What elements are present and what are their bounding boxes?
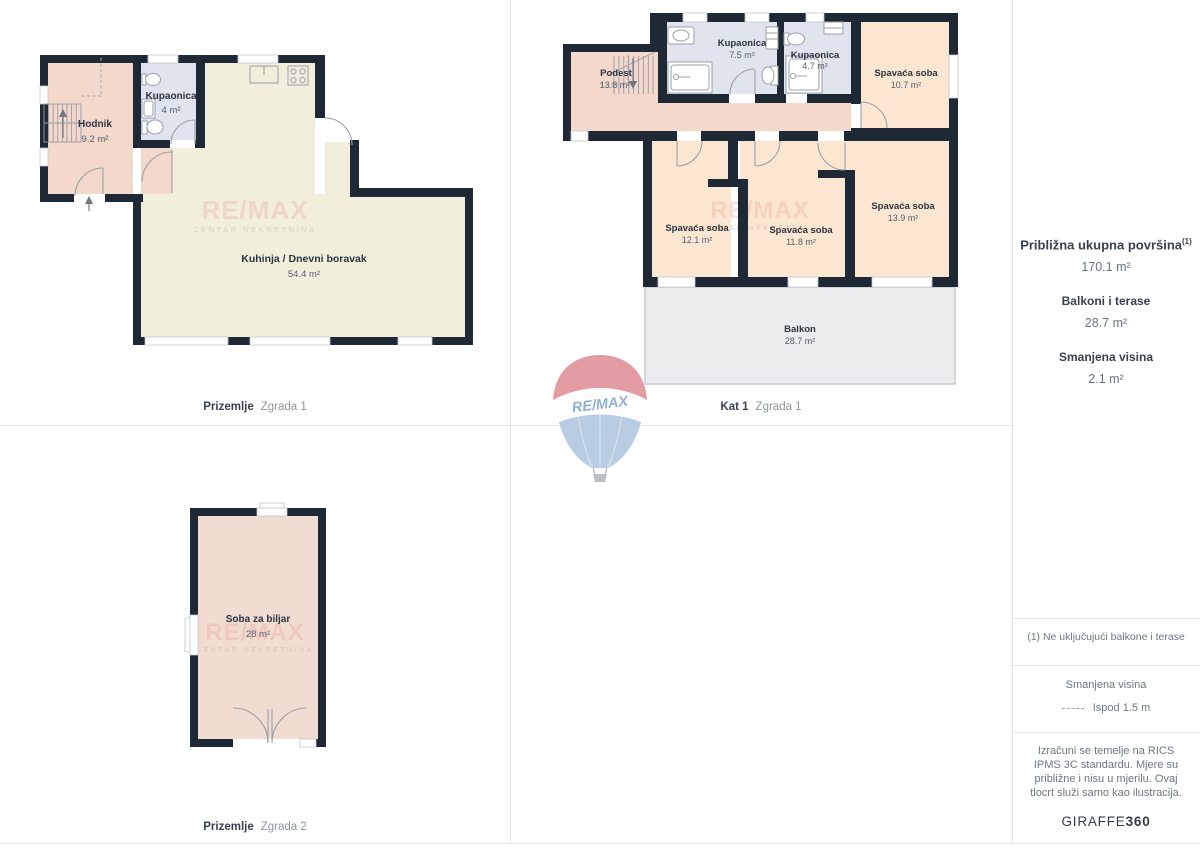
caption-plan3-building: Zgrada 2 (261, 821, 307, 833)
remax-balloon-logo: RE/MAX (540, 350, 660, 485)
legend-text: Ispod 1.5 m (1093, 702, 1150, 714)
total-area-text: Približna ukupna površina (1020, 237, 1182, 252)
total-area-footnote-marker: (1) (1182, 237, 1192, 246)
caption-plan1: Prizemlje Zgrada 1 (0, 401, 510, 413)
svg-text:CENTAR NEKRETNINA: CENTAR NEKRETNINA (196, 647, 314, 654)
total-area-label: Približna ukupna površina(1) (1012, 234, 1200, 252)
svg-text:7.5 m²: 7.5 m² (729, 50, 755, 60)
svg-text:Kuhinja / Dnevni boravak: Kuhinja / Dnevni boravak (241, 253, 367, 265)
svg-text:CENTAR NEKRETNINA: CENTAR NEKRETNINA (193, 225, 316, 234)
legend-title: Smanjena visina (1012, 679, 1200, 691)
svg-text:Kupaonica: Kupaonica (718, 38, 767, 49)
caption-plan2: Kat 1 Zgrada 1 (510, 401, 1012, 413)
brand-bold: 360 (1126, 814, 1151, 829)
svg-text:Kupaonica: Kupaonica (145, 91, 197, 102)
brand-regular: GIRAFFE (1061, 814, 1125, 829)
svg-text:9.2 m²: 9.2 m² (82, 134, 109, 145)
svg-text:Balkon: Balkon (784, 324, 816, 335)
disclaimer-text: Izračuni se temelje na RICS IPMS 3C stan… (1024, 744, 1188, 800)
svg-text:Spavaća soba: Spavaća soba (871, 201, 935, 212)
svg-text:13.9 m²: 13.9 m² (888, 213, 919, 223)
dashed-line-sample (1062, 708, 1084, 709)
reduced-height-label: Smanjena visina (1012, 350, 1200, 364)
svg-text:Spavaća soba: Spavaća soba (665, 223, 729, 234)
giraffe360-brand: GIRAFFE360 (1012, 814, 1200, 829)
svg-text:RE/MAX: RE/MAX (710, 197, 809, 224)
divider-horizontal-bottom (0, 843, 1200, 844)
svg-text:10.7 m²: 10.7 m² (891, 80, 922, 90)
svg-text:Spavaća soba: Spavaća soba (874, 68, 938, 79)
caption-plan3: Prizemlje Zgrada 2 (0, 821, 510, 833)
svg-text:11.8 m²: 11.8 m² (786, 237, 816, 247)
floor-plan-prizemlje-zgrada2: RE/MAX CENTAR NEKRETNINA Soba za biljar … (0, 425, 510, 843)
balconies-value: 28.7 m² (1012, 316, 1200, 330)
caption-plan3-floor: Prizemlje (203, 821, 254, 833)
svg-text:Kupaonica: Kupaonica (791, 50, 840, 61)
svg-text:4 m²: 4 m² (162, 105, 181, 116)
total-area-value: 170.1 m² (1012, 260, 1200, 274)
area-summary: Približna ukupna površina(1) 170.1 m² Ba… (1012, 234, 1200, 386)
door-openings (233, 739, 307, 747)
svg-text:4.7 m²: 4.7 m² (802, 61, 828, 71)
sidebar-divider-1 (1012, 618, 1200, 619)
caption-plan2-floor: Kat 1 (720, 401, 748, 413)
caption-plan2-building: Zgrada 1 (756, 401, 802, 413)
svg-text:28 m²: 28 m² (246, 629, 270, 640)
summary-sidebar: Približna ukupna površina(1) 170.1 m² Ba… (1012, 0, 1200, 843)
caption-plan1-building: Zgrada 1 (261, 401, 307, 413)
caption-plan1-floor: Prizemlje (203, 401, 254, 413)
svg-text:Soba za biljar: Soba za biljar (226, 614, 291, 625)
footnote: (1) Ne uključujući balkone i terase (1012, 631, 1200, 643)
balloon-basket (593, 474, 607, 482)
balconies-label: Balkoni i terase (1012, 294, 1200, 308)
reduced-height-value: 2.1 m² (1012, 372, 1200, 386)
sidebar-divider-3 (1012, 732, 1200, 733)
svg-text:54.4 m²: 54.4 m² (288, 269, 320, 280)
sidebar-divider-2 (1012, 665, 1200, 666)
svg-text:Hodnik: Hodnik (78, 119, 112, 130)
watermark: RE/MAX CENTAR NEKRETNINA (193, 195, 316, 234)
svg-text:Podest: Podest (600, 68, 633, 79)
legend-row: Ispod 1.5 m (1012, 702, 1200, 714)
svg-text:RE/MAX: RE/MAX (201, 195, 308, 225)
svg-text:28.7 m²: 28.7 m² (785, 336, 816, 346)
reduced-height-legend: Smanjena visina Ispod 1.5 m (1012, 679, 1200, 714)
disclaimer-block: Izračuni se temelje na RICS IPMS 3C stan… (1012, 744, 1200, 829)
floor-plan-prizemlje-zgrada1: RE/MAX CENTAR NEKRETNINA (0, 0, 510, 425)
svg-text:13.8 m²: 13.8 m² (600, 80, 631, 90)
svg-text:Spavaća soba: Spavaća soba (769, 225, 833, 236)
svg-text:12.1 m²: 12.1 m² (682, 235, 713, 245)
